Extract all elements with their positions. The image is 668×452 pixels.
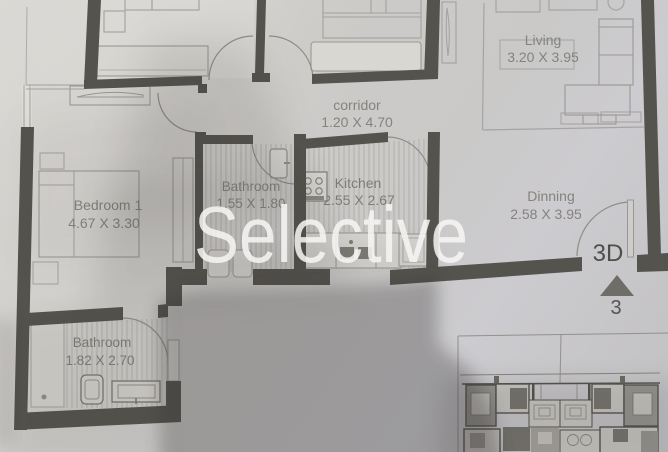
svg-text:corridor: corridor [333,97,381,113]
svg-text:3.20 X 3.95: 3.20 X 3.95 [507,49,579,65]
svg-text:Kitchen: Kitchen [335,175,382,191]
svg-text:3D: 3D [593,240,624,267]
svg-text:Selective: Selective [194,190,468,279]
svg-text:3: 3 [610,297,621,319]
svg-text:Dinning: Dinning [527,188,574,204]
svg-text:1.20 X 4.70: 1.20 X 4.70 [321,114,393,130]
svg-text:Living: Living [525,32,562,48]
svg-text:2.58 X 3.95: 2.58 X 3.95 [510,206,582,222]
